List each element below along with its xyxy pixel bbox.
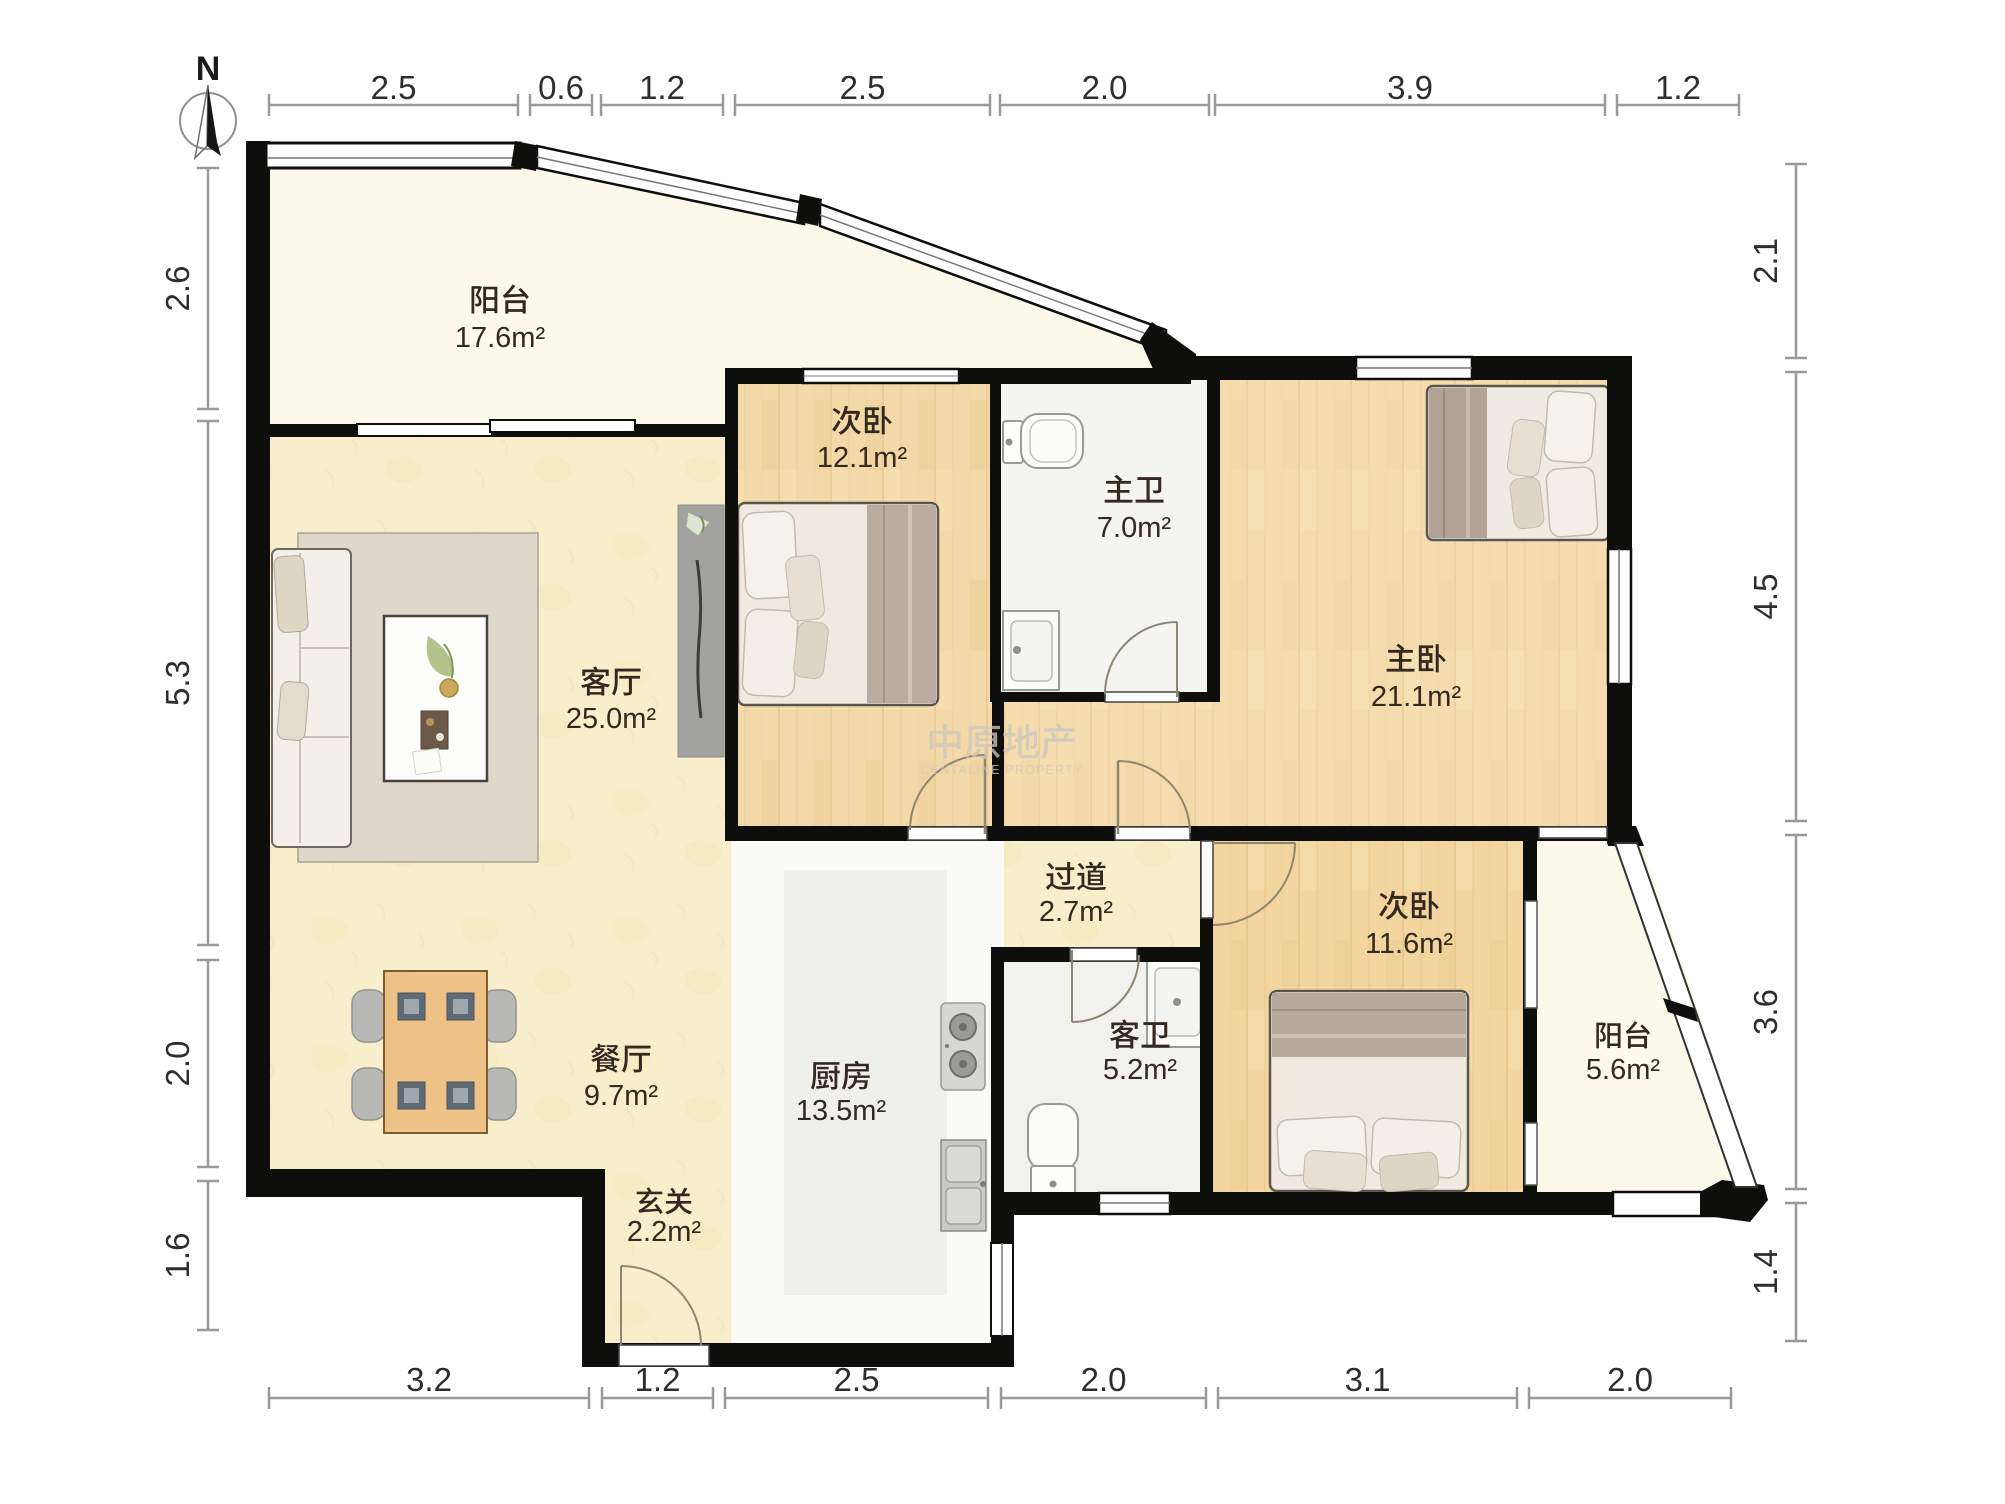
svg-text:25.0m²: 25.0m² <box>566 703 657 735</box>
svg-text:3.9: 3.9 <box>1387 69 1433 106</box>
svg-text:2.1: 2.1 <box>1747 238 1784 284</box>
svg-text:2.6: 2.6 <box>159 266 196 312</box>
svg-text:1.2: 1.2 <box>639 69 685 106</box>
svg-text:3.1: 3.1 <box>1345 1361 1391 1398</box>
svg-text:2.2m²: 2.2m² <box>627 1216 701 1248</box>
svg-text:12.1m²: 12.1m² <box>817 442 908 474</box>
svg-text:5.2m²: 5.2m² <box>1103 1054 1177 1086</box>
svg-text:1.2: 1.2 <box>1655 69 1701 106</box>
svg-text:2.0: 2.0 <box>1081 1361 1127 1398</box>
svg-text:21.1m²: 21.1m² <box>1371 681 1462 713</box>
svg-text:2.5: 2.5 <box>834 1361 880 1398</box>
svg-text:5.6m²: 5.6m² <box>1586 1054 1660 1086</box>
svg-text:2.5: 2.5 <box>840 69 886 106</box>
svg-text:1.6: 1.6 <box>159 1233 196 1279</box>
svg-text:CENTALINE PROPERTY: CENTALINE PROPERTY <box>921 763 1084 777</box>
svg-text:2.0: 2.0 <box>1082 69 1128 106</box>
svg-text:7.0m²: 7.0m² <box>1097 512 1171 544</box>
svg-text:0.6: 0.6 <box>538 69 584 106</box>
svg-text:9.7m²: 9.7m² <box>584 1080 658 1112</box>
svg-text:17.6m²: 17.6m² <box>455 322 546 354</box>
svg-text:5.3: 5.3 <box>159 660 196 706</box>
svg-text:13.5m²: 13.5m² <box>796 1095 887 1127</box>
svg-text:1.2: 1.2 <box>635 1361 681 1398</box>
svg-text:3.2: 3.2 <box>406 1361 452 1398</box>
svg-text:2.7m²: 2.7m² <box>1039 896 1113 928</box>
svg-text:11.6m²: 11.6m² <box>1365 928 1453 960</box>
svg-text:N: N <box>196 50 221 88</box>
svg-text:2.0: 2.0 <box>1607 1361 1653 1398</box>
svg-text:2.0: 2.0 <box>159 1041 196 1087</box>
svg-text:4.5: 4.5 <box>1747 574 1784 620</box>
svg-text:2.5: 2.5 <box>371 69 417 106</box>
svg-text:3.6: 3.6 <box>1747 989 1784 1035</box>
svg-text:1.4: 1.4 <box>1747 1249 1784 1295</box>
